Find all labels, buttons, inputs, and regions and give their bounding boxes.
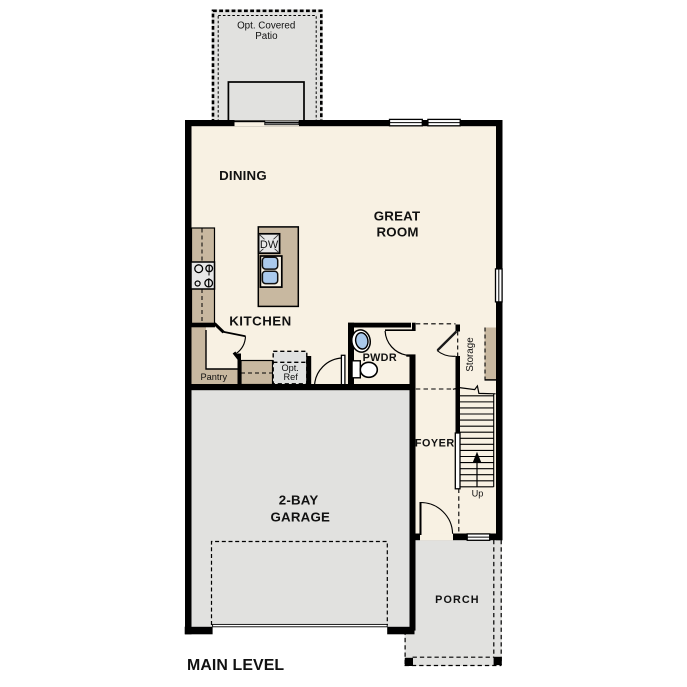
svg-text:GARAGE: GARAGE (271, 510, 331, 525)
svg-text:Patio: Patio (255, 31, 278, 42)
svg-text:DINING: DINING (219, 168, 267, 183)
svg-text:FOYER: FOYER (415, 438, 455, 450)
svg-text:Storage: Storage (465, 337, 476, 372)
svg-text:MAIN LEVEL: MAIN LEVEL (187, 657, 284, 674)
svg-text:Pantry: Pantry (201, 372, 228, 382)
svg-text:KITCHEN: KITCHEN (229, 314, 292, 329)
svg-text:2-BAY: 2-BAY (279, 492, 319, 507)
svg-text:PORCH: PORCH (435, 594, 480, 606)
svg-text:Ref: Ref (284, 372, 299, 382)
svg-text:Up: Up (472, 488, 484, 498)
svg-text:Opt. Covered: Opt. Covered (237, 20, 295, 31)
svg-text:ROOM: ROOM (377, 225, 419, 240)
svg-text:GREAT: GREAT (374, 209, 421, 224)
svg-text:PWDR: PWDR (363, 352, 397, 364)
svg-text:DW: DW (260, 239, 279, 251)
